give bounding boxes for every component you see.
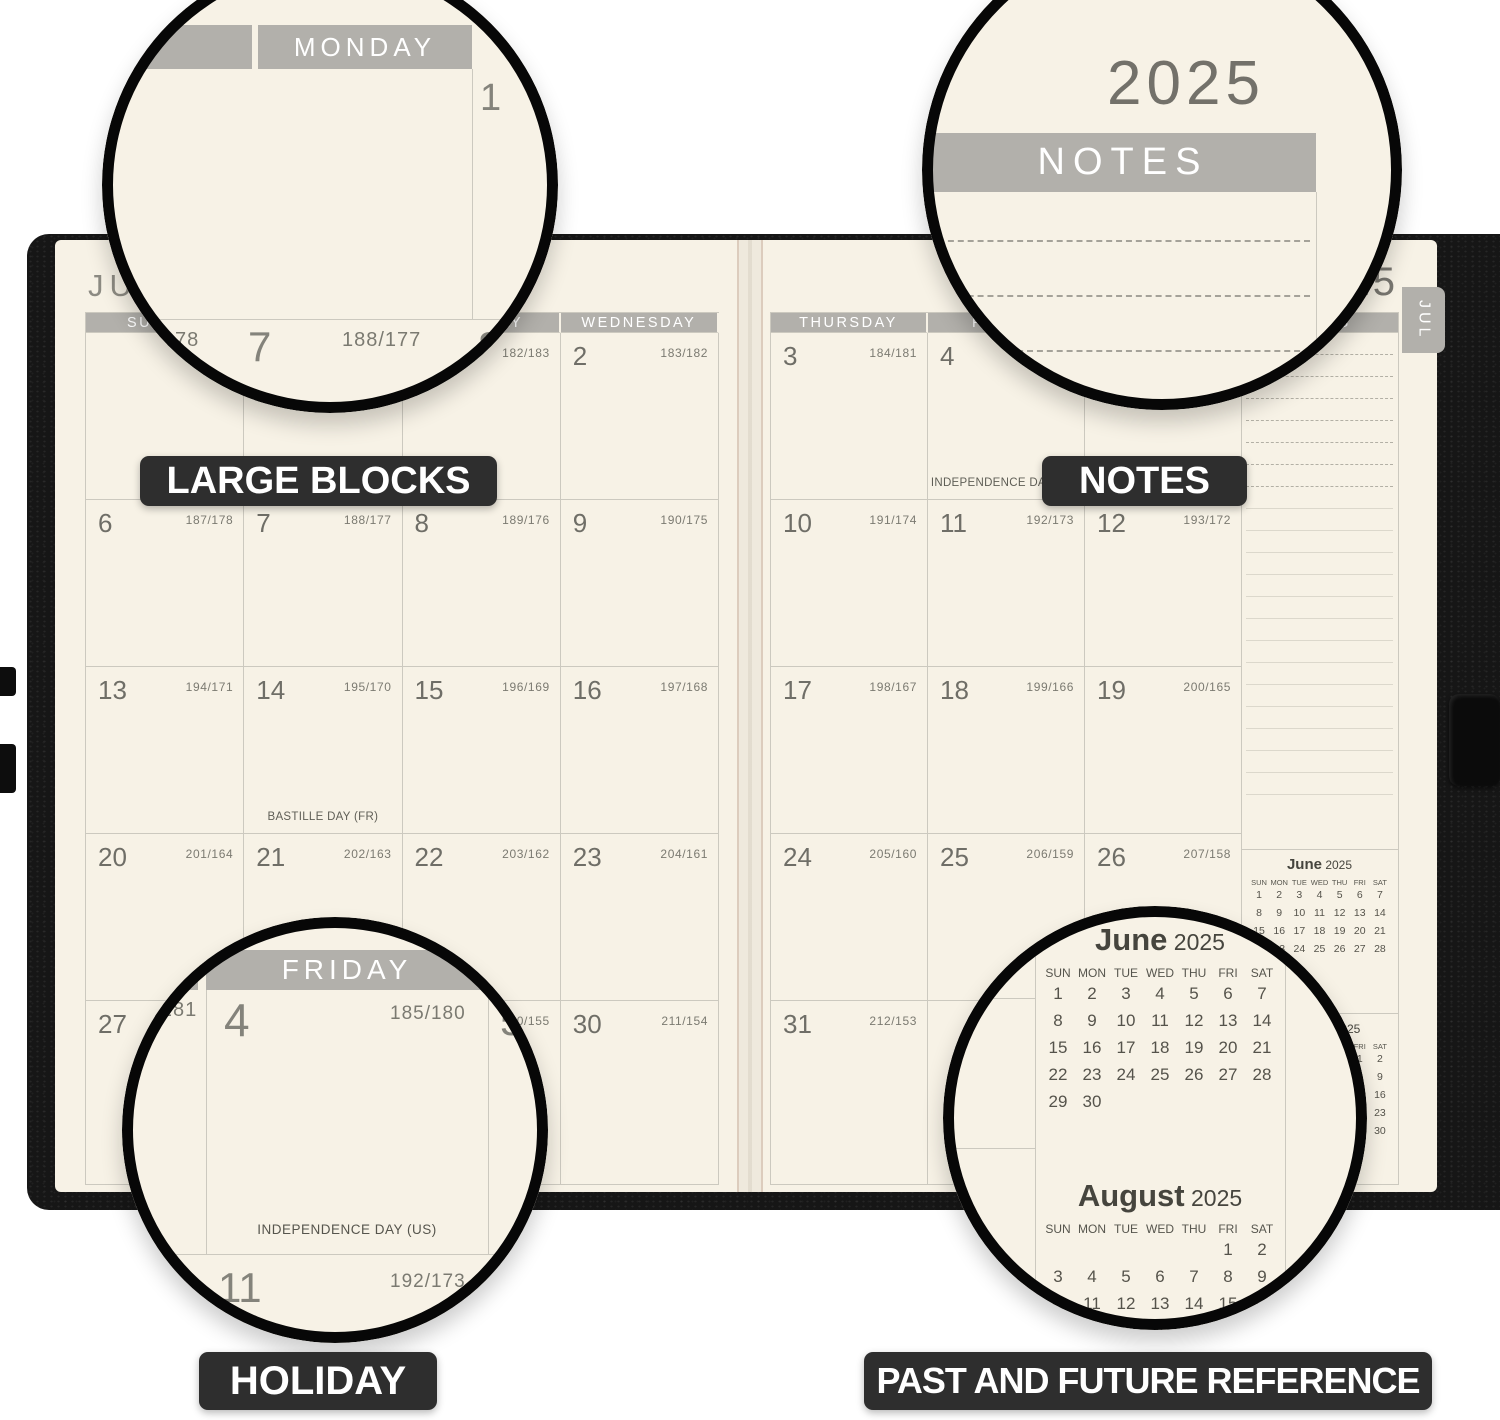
day-cell: 31212/153 [771, 1001, 928, 1185]
julian-date: 188/177 [342, 329, 421, 352]
day-number: 8 [478, 323, 501, 371]
julian-date: 197/168 [660, 680, 708, 694]
grid-line [152, 1254, 532, 1255]
day-number: 16 [573, 675, 602, 706]
julian-date: 182/183 [502, 346, 550, 360]
grid-line [943, 1148, 1035, 1149]
julian-date: 187/178 [186, 513, 234, 527]
day-cell: 10191/174 [771, 500, 928, 667]
day-number: 21 [256, 842, 285, 873]
day-number: 18 [940, 675, 969, 706]
day-number: 14 [256, 675, 285, 706]
julian-date: 183/182 [660, 346, 708, 360]
weekday-header: THURSDAY [771, 313, 928, 333]
weekday-header-monday: MONDAY [258, 25, 472, 69]
year-number: 2025 [1107, 48, 1265, 119]
left-edge-strap [0, 667, 16, 696]
day-number: 26 [1097, 842, 1126, 873]
grid-line [472, 69, 473, 319]
julian-date: 192/173 [1026, 513, 1074, 527]
day-number: 9 [573, 508, 587, 539]
grid-line [488, 990, 489, 1254]
day-cell: 14195/170BASTILLE DAY (FR) [244, 667, 402, 834]
weekday-header-fragment [122, 25, 252, 69]
notes-ruled-lines [1241, 487, 1398, 795]
day-cell: 7188/177 [244, 500, 402, 667]
day-number: 31 [783, 1009, 812, 1040]
mini-calendar-days: 1234567891011121314151617181920212223242… [1035, 984, 1285, 1119]
badge-large-blocks: LARGE BLOCKS [140, 456, 497, 506]
mini-calendar-title: June 2025 [1241, 856, 1398, 874]
day-number: 30 [573, 1009, 602, 1040]
ruled-line [938, 350, 1310, 352]
day-number: 20 [98, 842, 127, 873]
day-number: 2 [573, 341, 587, 372]
julian-date: 191/174 [869, 513, 917, 527]
julian-date: 188/177 [344, 513, 392, 527]
ruled-line [938, 240, 1310, 242]
grid-line [1285, 906, 1286, 1330]
weekday-header: WEDNESDAY [561, 313, 719, 333]
day-number: 4 [940, 341, 954, 372]
day-cell: 16197/168 [561, 667, 719, 834]
pen-loop [1449, 694, 1500, 786]
julian-date: 200/165 [1183, 680, 1231, 694]
day-number: 3 [783, 341, 797, 372]
day-number: 5 [500, 997, 523, 1045]
badge-notes: NOTES [1042, 456, 1247, 506]
julian-date: 196/169 [502, 680, 550, 694]
day-number: 8 [415, 508, 429, 539]
grid-line [943, 998, 1035, 999]
julian-date: 193/172 [1183, 513, 1231, 527]
day-number: 22 [415, 842, 444, 873]
day-cell: 19200/165 [1085, 667, 1242, 834]
day-cell: 17198/167 [771, 667, 928, 834]
ruled-line [938, 295, 1310, 297]
julian-date: 199/166 [1026, 680, 1074, 694]
julian-date: 203/162 [502, 847, 550, 861]
weekday-header-friday: FRIDAY [206, 950, 488, 990]
day-number: 13 [98, 675, 127, 706]
julian-date: 202/163 [344, 847, 392, 861]
grid-line [1035, 906, 1036, 1330]
mini-calendar-june-magnified: June 2025SUNMONTUEWEDTHUFRISAT1234567891… [1035, 916, 1285, 1119]
mini-calendar-weekdays: SUNMONTUEWEDTHUFRISAT [1241, 878, 1398, 887]
magnifier-reference: June 2025SUNMONTUEWEDTHUFRISAT1234567891… [943, 906, 1367, 1330]
day-number: 7 [248, 323, 271, 371]
month-tab: JUL [1402, 287, 1445, 353]
julian-date: 184/181 [869, 346, 917, 360]
day-cell: 24205/160 [771, 834, 928, 1001]
julian-date: 192/173 [390, 1271, 466, 1293]
day-cell: 15196/169 [403, 667, 561, 834]
julian-date: 184/181 [122, 999, 197, 1022]
left-edge-strap [0, 744, 16, 793]
magnifier-holiday: FRIDAY 184/181 4 185/180 5 INDEPENDENCE … [122, 917, 548, 1343]
day-cell: 2183/182 [561, 333, 719, 500]
notes-header: NOTES [930, 133, 1316, 192]
julian-date: 211/154 [661, 1014, 708, 1028]
julian-date: 189/176 [502, 513, 550, 527]
day-cell: 18199/166 [928, 667, 1085, 834]
page-gutter [727, 240, 773, 1192]
julian-date: 187/178 [120, 329, 199, 352]
day-cell: 8189/176 [403, 500, 561, 667]
day-number: 4 [224, 993, 250, 1047]
badge-holiday: HOLIDAY [199, 1352, 437, 1410]
badge-past-future-reference: PAST AND FUTURE REFERENCE [864, 1352, 1432, 1410]
day-cell: 12193/172 [1085, 500, 1242, 667]
day-cell: 6187/178 [86, 500, 244, 667]
weekday-header-fragment [138, 950, 198, 990]
day-number: 12 [502, 1264, 548, 1312]
julian-date: 198/167 [869, 680, 917, 694]
day-number: 17 [783, 675, 812, 706]
day-number: 15 [415, 675, 444, 706]
julian-date: 185/180 [390, 1003, 466, 1025]
day-number: 7 [256, 508, 270, 539]
day-number: 12 [1097, 508, 1126, 539]
day-number: 1 [480, 77, 501, 120]
mini-calendar-title: August 2025 [1035, 1178, 1285, 1214]
day-cell: 3184/181 [771, 333, 928, 500]
day-cell: 11192/173 [928, 500, 1085, 667]
julian-date: 201/164 [186, 847, 234, 861]
day-cell: 23204/161 [561, 834, 719, 1001]
planner-product-photo: JULY 2025 JUL SUNDAYMONDAYTUESDAYWEDNESD… [0, 0, 1500, 1420]
holiday-label: INDEPENDENCE DAY (US) [206, 1222, 488, 1237]
mini-calendar-august-magnified: August 2025SUNMONTUEWEDTHUFRISAT12345678… [1035, 1172, 1285, 1330]
day-cell: 9190/175 [561, 500, 719, 667]
mini-calendar-days: 1234567891011121314151617181920212223242… [1035, 1240, 1285, 1330]
grid-line [1316, 192, 1317, 402]
grid-line [206, 990, 207, 1254]
mini-calendar-weekdays: SUNMONTUEWEDTHUFRISAT [1035, 966, 1285, 980]
mini-calendar-weekdays: SUNMONTUEWEDTHUFRISAT [1035, 1222, 1285, 1236]
day-number: 6 [98, 508, 112, 539]
day-cell: 30211/154 [561, 1001, 719, 1185]
day-number: 11 [940, 508, 967, 539]
julian-date: 212/153 [869, 1014, 917, 1028]
day-number: 23 [573, 842, 602, 873]
julian-date: 206/159 [1026, 847, 1074, 861]
day-number: 25 [940, 842, 969, 873]
julian-date: 195/170 [344, 680, 392, 694]
julian-date: 204/161 [660, 847, 708, 861]
magnifier-large-blocks: MONDAY 1 187/178 7 188/177 8 [102, 0, 558, 413]
day-cell: 13194/171 [86, 667, 244, 834]
day-number: 10 [783, 508, 812, 539]
day-number: 11 [218, 1264, 262, 1312]
julian-date: 194/171 [186, 680, 234, 694]
mini-calendar-title: June 2025 [1035, 922, 1285, 958]
day-number: 24 [783, 842, 812, 873]
julian-date: 190/175 [660, 513, 708, 527]
holiday-label: BASTILLE DAY (FR) [244, 811, 401, 823]
julian-date: 205/160 [869, 847, 917, 861]
julian-date: 207/158 [1183, 847, 1231, 861]
grid-line [132, 319, 532, 320]
day-number: 19 [1097, 675, 1126, 706]
